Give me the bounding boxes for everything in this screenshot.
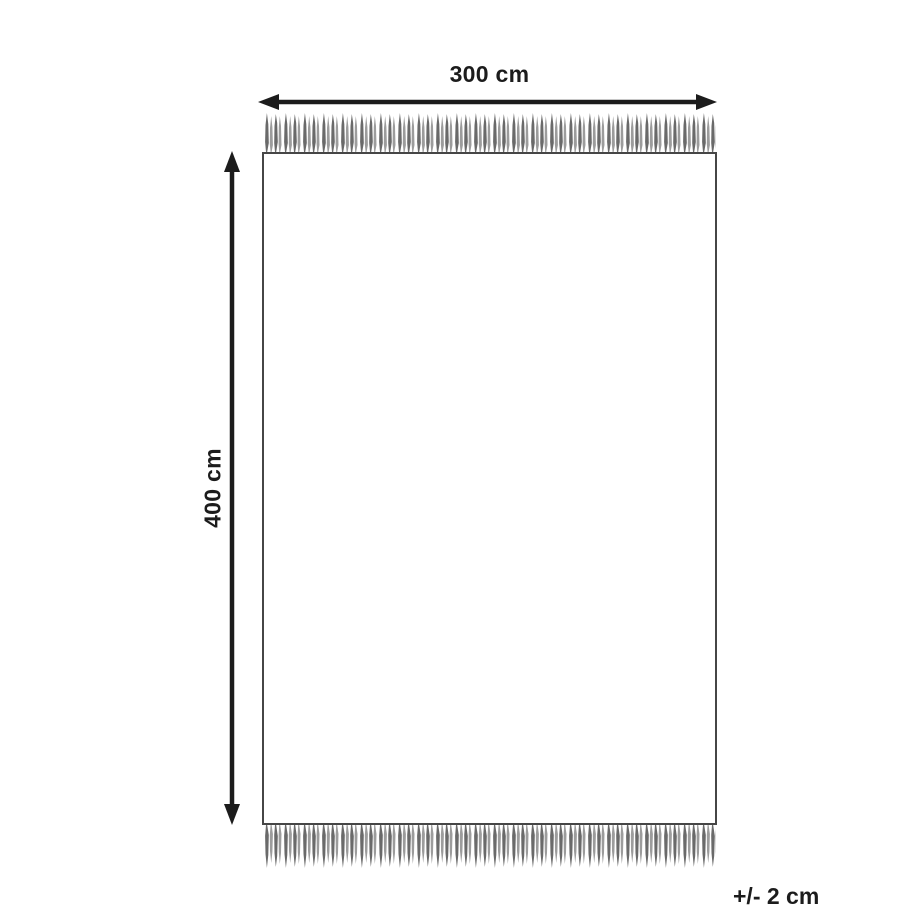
width-dimension-arrow	[258, 90, 717, 114]
height-arrow-bottom-head	[224, 804, 240, 825]
rug-outline	[262, 152, 717, 825]
height-dimension-arrow	[220, 151, 244, 825]
fringe-bottom	[263, 825, 716, 868]
tolerance-label: +/- 2 cm	[733, 883, 819, 910]
fringe-top	[263, 113, 716, 152]
rug-dimension-diagram: 300 cm 400 cm	[0, 0, 920, 920]
width-arrow-left-head	[258, 94, 279, 110]
fringe-top-strands	[263, 113, 716, 152]
width-dimension-label: 300 cm	[262, 61, 717, 88]
height-arrow-top-head	[224, 151, 240, 172]
fringe-bottom-strands	[263, 825, 716, 868]
width-arrow-right-head	[696, 94, 717, 110]
